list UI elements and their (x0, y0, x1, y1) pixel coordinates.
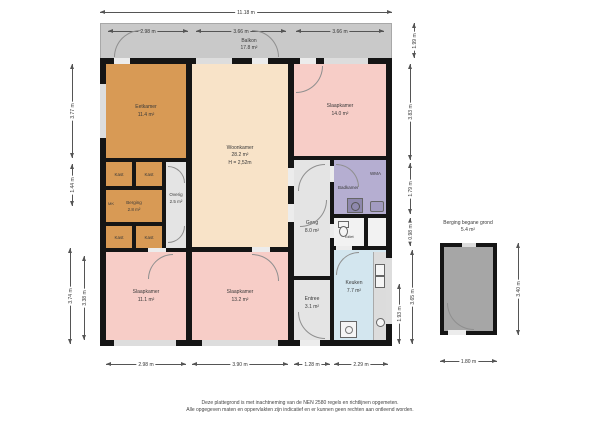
dim-balcony-right: 3.66 m (296, 31, 384, 32)
dim-balcony-height: 1.99 m (414, 23, 415, 58)
door-gap (330, 166, 334, 182)
slaapkamer-mid-name: Slaapkamer (227, 289, 254, 295)
shaft (368, 218, 386, 246)
berging-area: 2.8 m² (126, 207, 142, 213)
sink-icon (375, 276, 385, 288)
slaapkamer-left-area: 11.1 m² (133, 297, 160, 303)
dim-overall-width: 11.18 m (100, 12, 392, 13)
dim-left-4: 3.38 m (84, 256, 85, 340)
overig-label: Overig 2.5 m² (160, 192, 192, 204)
dim-balcony-left: 2.98 m (108, 31, 188, 32)
room-label: Slaapkamer 13.2 m² (227, 289, 254, 303)
storage-door-gap (448, 330, 466, 335)
room-label: Entree 3.1 m² (305, 296, 320, 310)
door-gap (148, 248, 166, 252)
window-mark (202, 340, 278, 346)
disclaimer-line-2: Alle opgegeven maten en oppervlakten zij… (0, 407, 600, 414)
overig-area: 2.5 m² (160, 199, 192, 205)
floorplan-canvas: 11.18 m 2.98 m 3.66 m 3.66 m Balkon 17.8… (0, 0, 600, 424)
woonkamer-area: 28.2 m² (227, 152, 254, 158)
dim-right-3: 0.98 m (410, 218, 411, 246)
room-label: Woonkamer 28.2 m² H = 2,52m (227, 145, 254, 166)
window-mark (196, 58, 232, 64)
woonkamer-height: H = 2,52m (227, 160, 254, 166)
room-kast-1: Kast (106, 162, 132, 186)
slaapkamer-mid-area: 13.2 m² (227, 297, 254, 303)
stove-icon (340, 321, 357, 338)
dim-right-1: 3.83 m (410, 64, 411, 160)
door-gap (288, 168, 294, 186)
room-label: Keuken 7.7 m² (346, 280, 363, 294)
storage-title-text: Berging begane grond (412, 220, 524, 226)
room-label: Slaapkamer 14.0 m² (327, 103, 354, 117)
dim-right-5: 1.93 m (399, 284, 400, 344)
room-kast-2: Kast (136, 162, 162, 186)
washbasin-icon (370, 201, 384, 212)
door-gap (336, 246, 352, 250)
room-kast-3: Kast (106, 226, 132, 248)
window-mark (386, 258, 392, 324)
kast-label: Kast (114, 172, 123, 177)
dim-right-4: 3.65 m (412, 250, 413, 344)
room-eetkamer: Eetkamer 11.4 m² (106, 64, 186, 158)
dim-storage-height: 3.40 m (518, 243, 519, 335)
door-gap (252, 58, 268, 64)
toilet-bowl-icon (339, 226, 348, 237)
door-gap (252, 247, 270, 252)
keuken-area: 7.7 m² (346, 288, 363, 294)
entree-area: 3.1 m² (305, 304, 320, 310)
keuken-name: Keuken (346, 280, 363, 286)
storage-area: 5.4 m² (412, 227, 524, 233)
woonkamer-name: Woonkamer (227, 145, 254, 151)
dim-left-3: 3.74 m (70, 248, 71, 344)
kitchen-counter (373, 252, 386, 340)
burner-icon (376, 318, 385, 327)
door-gap (330, 224, 334, 238)
dim-storage-width: 1.80 m (440, 361, 497, 362)
room-label: Berging 2.8 m² (126, 200, 142, 212)
dim-left-2: 1.44 m (72, 164, 73, 206)
dim-balcony-mid: 3.66 m (196, 31, 286, 32)
disclaimer: Deze plattegrond is met inachtneming van… (0, 400, 600, 414)
room-woonkamer: Woonkamer 28.2 m² H = 2,52m (192, 64, 288, 247)
window-mark (324, 58, 368, 64)
slaapkamer-top-area: 14.0 m² (327, 111, 354, 117)
dim-bottom-2: 3.90 m (192, 364, 288, 365)
wma-label: WMA (370, 171, 381, 176)
room-label: Eetkamer 11.4 m² (135, 104, 156, 118)
eetkamer-name: Eetkamer (135, 104, 156, 110)
dim-bottom-1: 2.98 m (106, 364, 186, 365)
kast-label: Kast (144, 235, 153, 240)
door-gap (114, 58, 130, 64)
dim-bottom-4: 2.29 m (334, 364, 388, 365)
mk-label: MK (108, 201, 114, 206)
room-slaapkamer-left: Slaapkamer 11.1 m² (106, 252, 186, 340)
room-kast-4: Kast (136, 226, 162, 248)
room-berging: Berging 2.8 m² (106, 190, 162, 222)
storage-title: Berging begane grond 5.4 m² (412, 220, 524, 234)
window-mark (100, 84, 106, 138)
washing-machine-icon (347, 198, 363, 213)
dim-left-1: 3.77 m (72, 64, 73, 158)
entree-name: Entree (305, 296, 320, 302)
kast-label: Kast (114, 235, 123, 240)
eetkamer-area: 11.4 m² (135, 112, 156, 118)
overig-name: Overig (160, 192, 192, 198)
door-gap (288, 204, 294, 222)
gang-area: 8.0 m² (305, 228, 319, 234)
front-door-gap (300, 340, 320, 346)
disclaimer-line-1: Deze plattegrond is met inachtneming van… (0, 400, 600, 407)
room-label: Slaapkamer 11.1 m² (133, 289, 160, 303)
berging-name: Berging (126, 200, 142, 206)
slaapkamer-left-name: Slaapkamer (133, 289, 160, 295)
dim-right-2: 1.79 m (410, 163, 411, 214)
room-toilet: Toilet (334, 218, 364, 246)
sink-icon (375, 264, 385, 276)
dim-bottom-3: 1.28 m (294, 364, 330, 365)
slaapkamer-top-name: Slaapkamer (327, 103, 354, 109)
kast-label: Kast (144, 172, 153, 177)
door-gap (300, 58, 316, 64)
window-mark (114, 340, 176, 346)
storage-vent (462, 243, 476, 247)
